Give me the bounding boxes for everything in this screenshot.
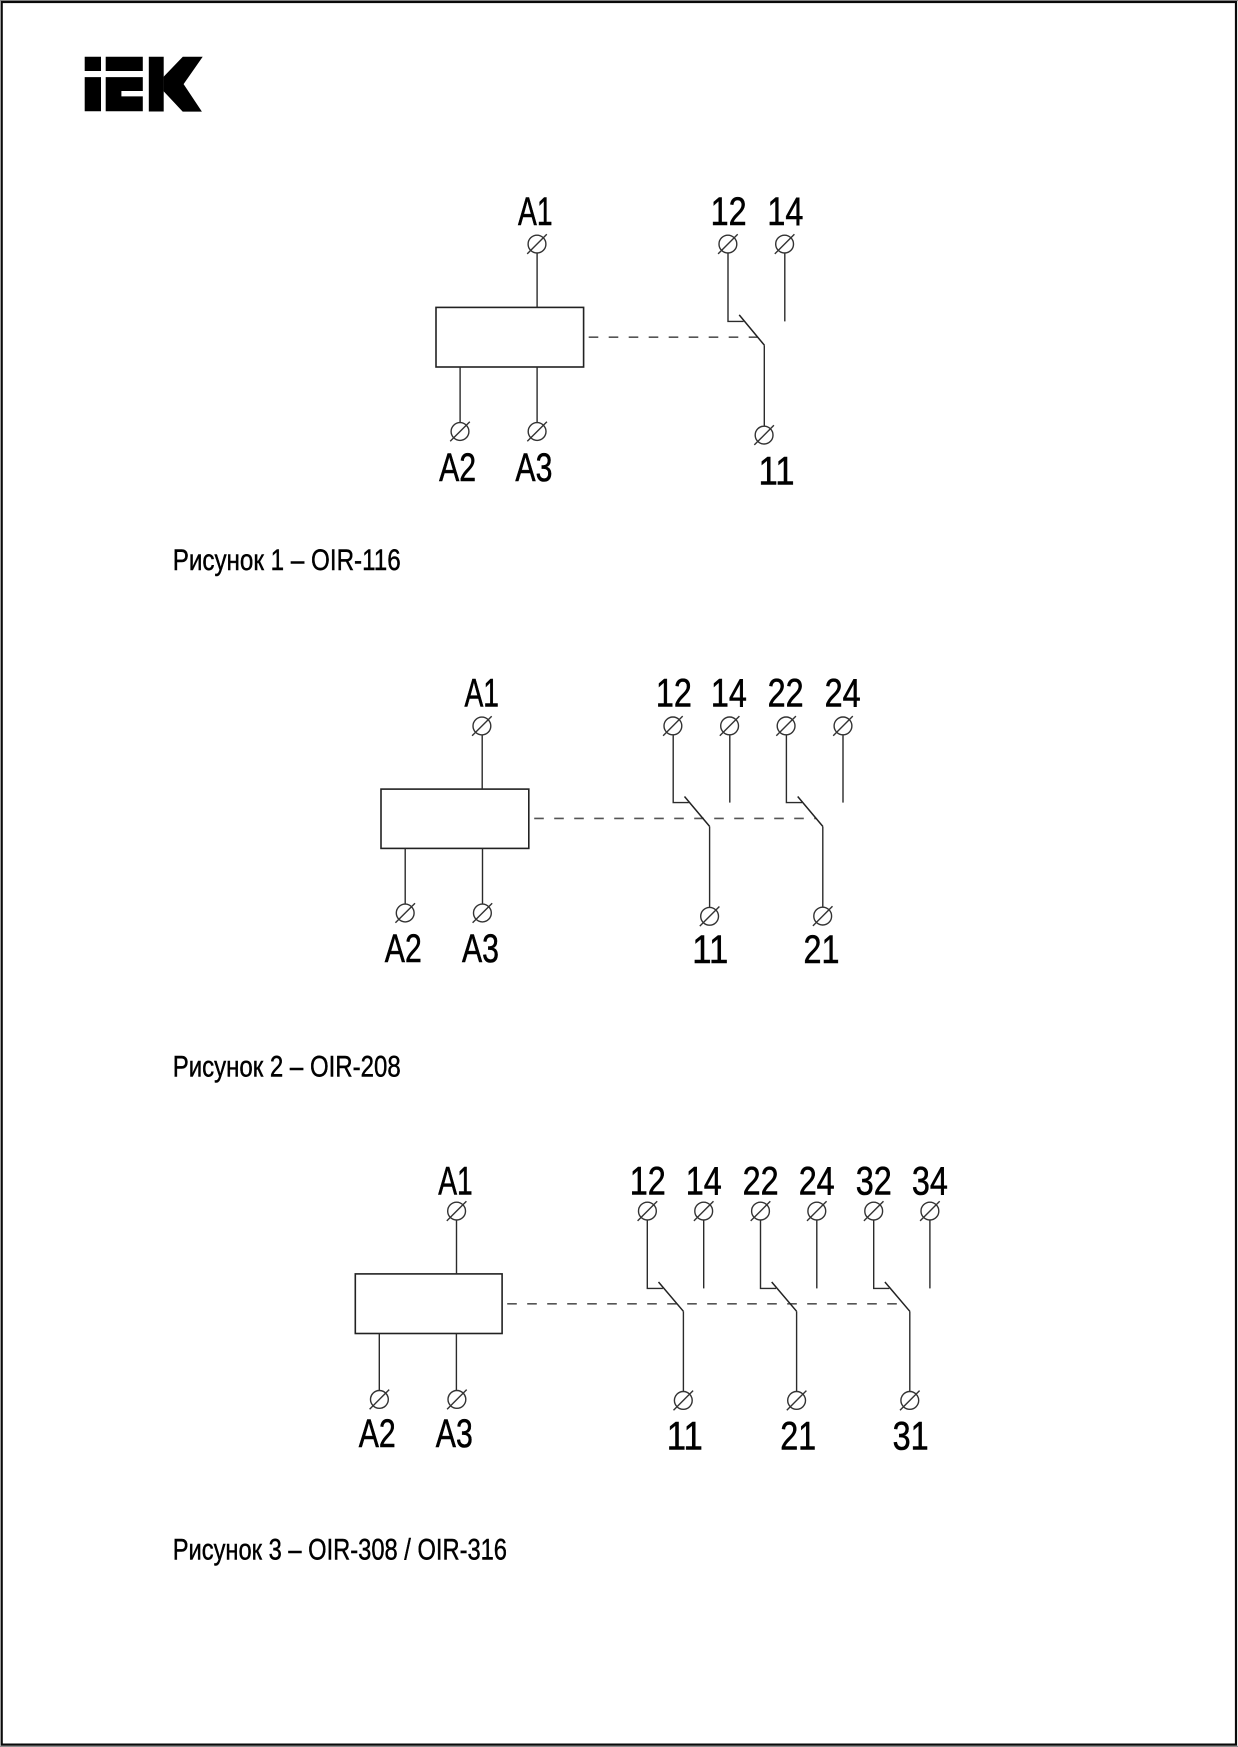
svg-text:Рисунок 2 – OIR-208: Рисунок 2 – OIR-208 (173, 1051, 401, 1084)
svg-text:21: 21 (804, 928, 840, 972)
svg-text:A2: A2 (359, 1412, 396, 1456)
svg-text:12: 12 (630, 1159, 666, 1203)
svg-text:A1: A1 (518, 190, 553, 234)
svg-text:12: 12 (656, 671, 692, 715)
svg-text:22: 22 (768, 671, 804, 715)
svg-text:32: 32 (856, 1159, 892, 1203)
svg-text:A3: A3 (462, 927, 499, 971)
svg-text:24: 24 (825, 671, 861, 715)
svg-text:34: 34 (912, 1159, 948, 1203)
svg-text:A1: A1 (438, 1159, 473, 1203)
svg-text:14: 14 (686, 1159, 722, 1203)
svg-text:A2: A2 (439, 446, 476, 490)
svg-text:A3: A3 (515, 446, 552, 490)
svg-text:11: 11 (667, 1415, 703, 1459)
svg-text:A1: A1 (464, 671, 499, 715)
svg-text:22: 22 (743, 1159, 779, 1203)
svg-text:14: 14 (767, 190, 803, 234)
svg-text:A3: A3 (436, 1412, 473, 1456)
svg-text:A2: A2 (385, 927, 422, 971)
svg-text:14: 14 (711, 671, 747, 715)
svg-text:12: 12 (711, 190, 747, 234)
svg-text:Рисунок 3 – OIR-308 / OIR-316: Рисунок 3 – OIR-308 / OIR-316 (173, 1533, 507, 1566)
svg-text:11: 11 (759, 450, 795, 494)
svg-text:31: 31 (893, 1415, 929, 1459)
svg-text:Рисунок 1 – OIR-116: Рисунок 1 – OIR-116 (173, 544, 401, 577)
svg-text:24: 24 (799, 1159, 835, 1203)
svg-text:21: 21 (780, 1415, 816, 1459)
svg-text:11: 11 (692, 928, 728, 972)
